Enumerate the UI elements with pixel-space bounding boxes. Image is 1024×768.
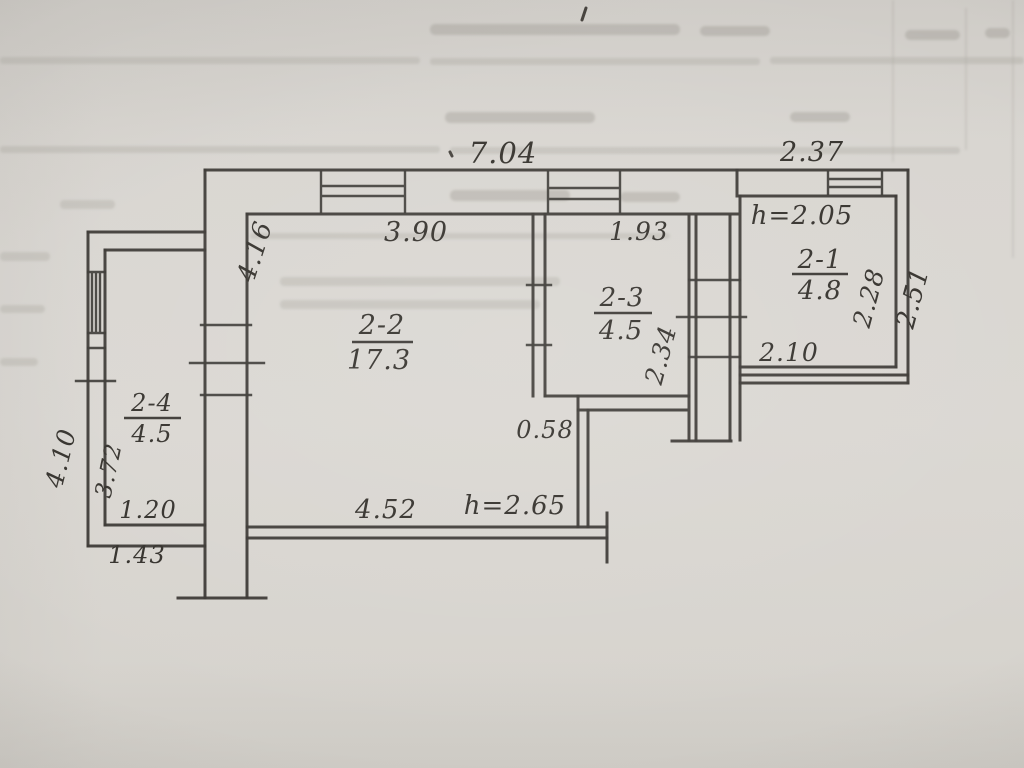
height-right-room: h=2.05 <box>751 201 853 231</box>
dim-corridor-side: 2.34 <box>639 322 683 388</box>
dim-room23-top: 1.93 <box>609 217 669 246</box>
room21-area: 4.8 <box>797 276 842 306</box>
room24-number: 2-4 <box>130 389 173 417</box>
dim-room22-left-side: 4.16 <box>231 217 279 286</box>
door-openings-main-left-wall <box>190 325 264 395</box>
dim-annex-bottom: 1.43 <box>108 541 165 569</box>
dim-annex-outer-side: 4.10 <box>39 425 82 491</box>
dim-room22-top: 3.90 <box>384 217 448 248</box>
room22-number: 2-2 <box>358 310 405 341</box>
dim-room21-bottom: 2.10 <box>758 338 819 367</box>
room24-area: 4.5 <box>130 420 172 448</box>
window-top-room21 <box>828 172 882 194</box>
window-top-room22 <box>321 172 405 212</box>
floor-plan-drawing: 7.04 2.37 h=2.05 2.28 2.51 2.10 1.93 3.9… <box>0 0 1024 768</box>
dim-room24-inner-side: 3.72 <box>91 441 128 500</box>
dim-room24-bottom: 1.20 <box>119 496 176 524</box>
room23-area: 4.5 <box>598 316 643 346</box>
dim-room21-inner-side: 2.28 <box>847 265 891 331</box>
height-main-room: h=2.65 <box>464 491 566 521</box>
photographed-floor-plan: 7.04 2.37 h=2.05 2.28 2.51 2.10 1.93 3.9… <box>0 0 1024 768</box>
corridor-walls <box>672 196 746 441</box>
room22-area: 17.3 <box>347 345 411 376</box>
room23-number: 2-3 <box>599 283 645 313</box>
window-annex-left <box>76 272 115 381</box>
dim-top-right-width: 2.37 <box>779 137 844 168</box>
dim-top-width: 7.04 <box>469 136 538 170</box>
dim-passage-step: 0.58 <box>516 416 573 444</box>
dim-bottom-width: 4.52 <box>354 495 417 525</box>
room21-number: 2-1 <box>797 245 843 275</box>
